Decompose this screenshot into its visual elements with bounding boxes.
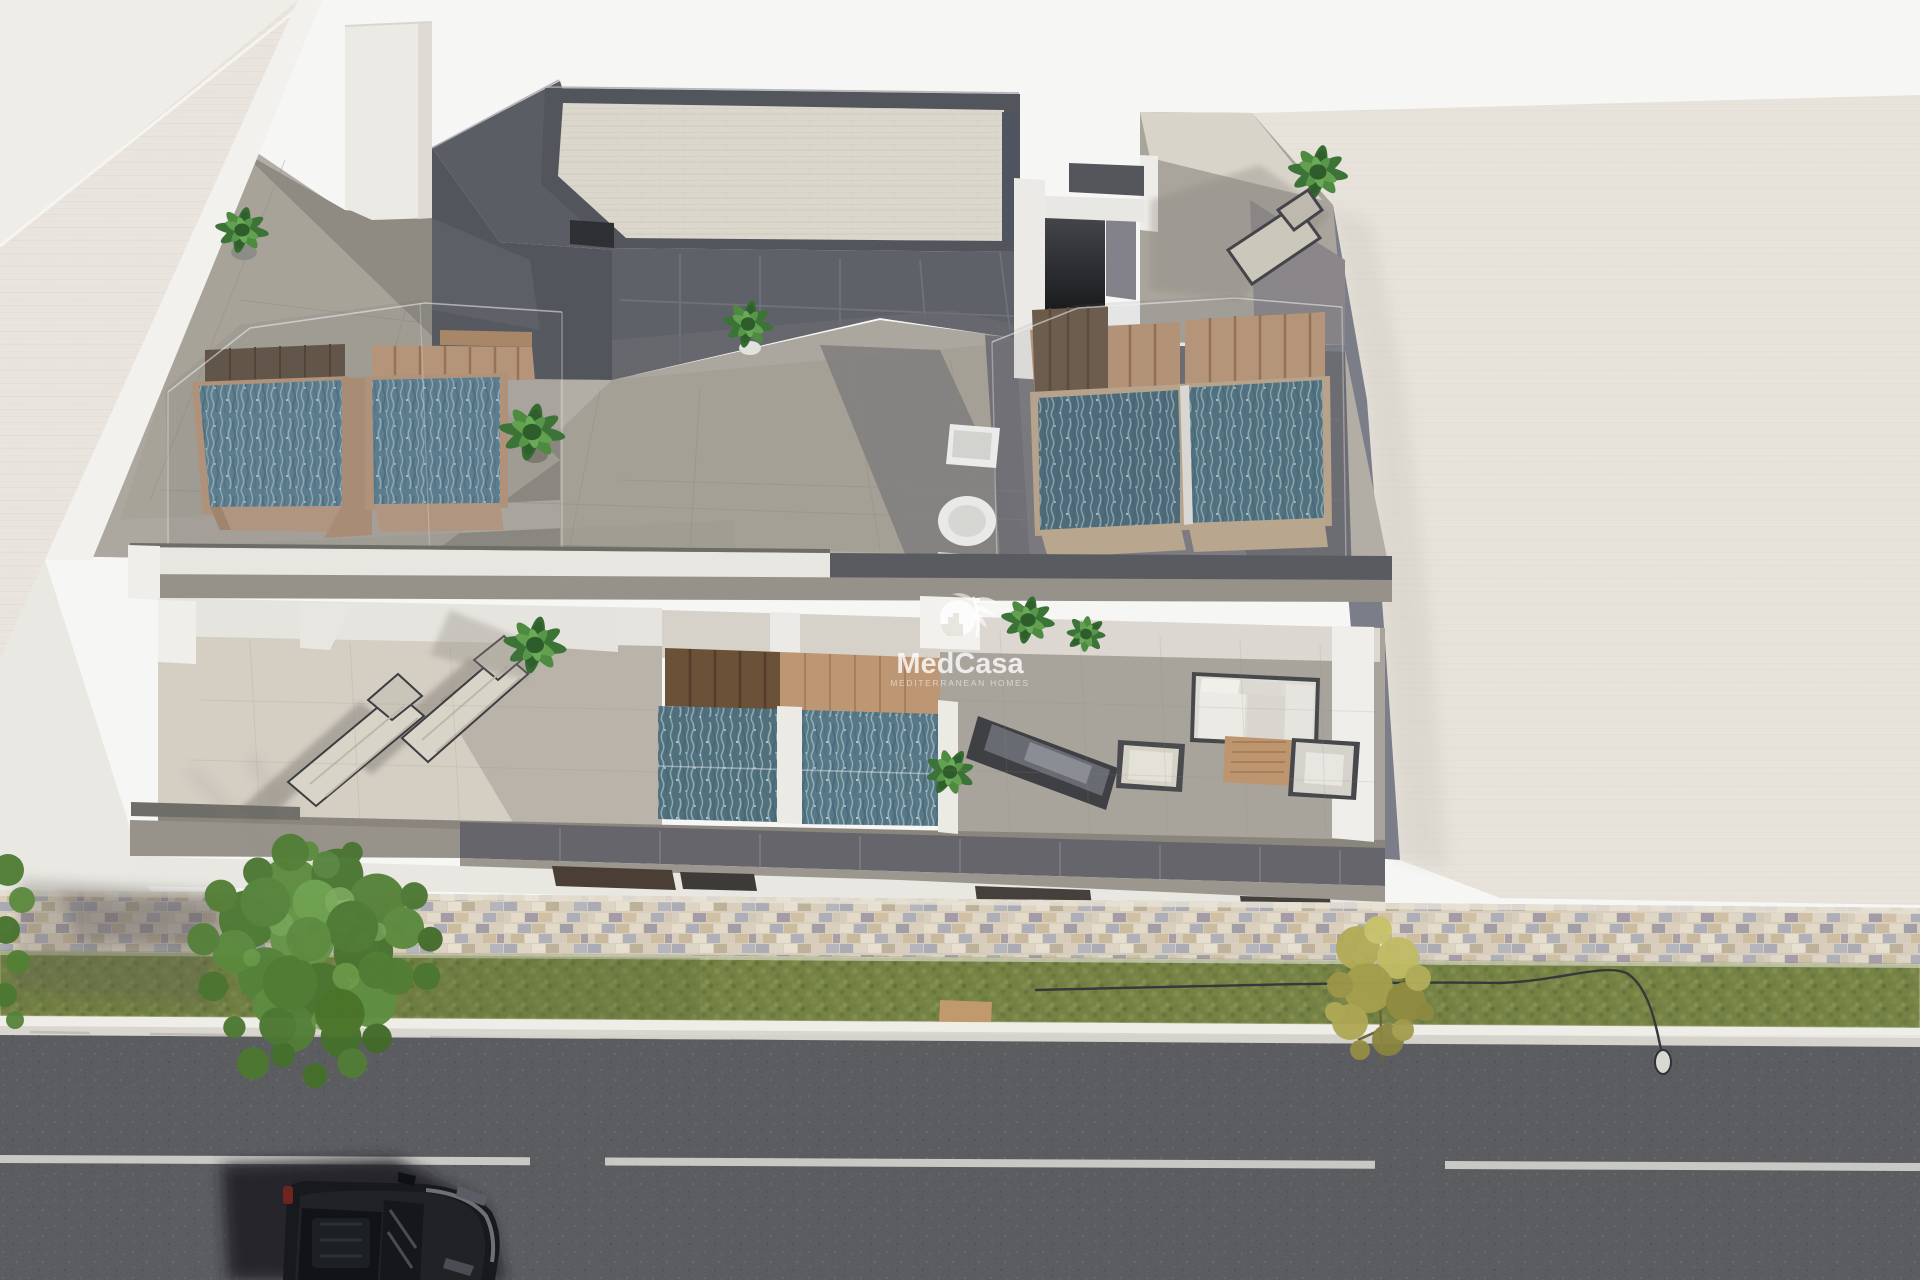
svg-text:MedCasa: MedCasa [896, 648, 1024, 680]
svg-text:MEDITERRANEAN HOMES: MEDITERRANEAN HOMES [890, 678, 1030, 688]
